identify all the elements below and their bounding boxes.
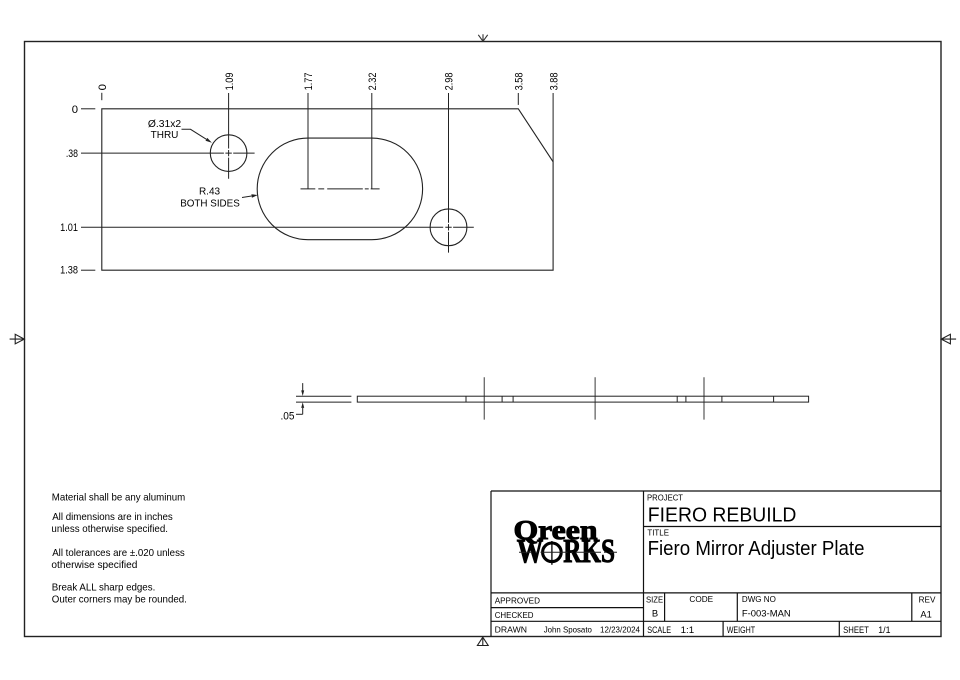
svg-text:TITLE: TITLE xyxy=(647,528,669,538)
svg-text:PROJECT: PROJECT xyxy=(647,492,683,502)
svg-text:John Sposato: John Sposato xyxy=(544,625,592,635)
svg-text:Break ALL sharp edges.: Break ALL sharp edges. xyxy=(52,583,156,594)
svg-text:2.98: 2.98 xyxy=(444,73,456,91)
svg-text:R.43: R.43 xyxy=(199,186,221,197)
svg-text:1.01: 1.01 xyxy=(60,222,78,234)
svg-text:DRAWN: DRAWN xyxy=(495,625,527,635)
svg-text:DWG NO: DWG NO xyxy=(742,594,776,604)
svg-text:B: B xyxy=(652,607,658,618)
svg-text:F-003-MAN: F-003-MAN xyxy=(742,607,791,618)
svg-text:APPROVED: APPROVED xyxy=(495,595,540,605)
svg-text:Fiero Mirror Adjuster Plate: Fiero Mirror Adjuster Plate xyxy=(648,538,865,560)
svg-text:12/23/2024: 12/23/2024 xyxy=(600,625,640,635)
svg-text:CODE: CODE xyxy=(689,594,713,604)
svg-text:1.09: 1.09 xyxy=(224,73,236,91)
svg-text:REV: REV xyxy=(919,595,936,605)
svg-text:1:1: 1:1 xyxy=(681,625,695,635)
svg-text:0: 0 xyxy=(72,104,78,116)
svg-text:W: W xyxy=(517,533,544,570)
svg-text:WEIGHT: WEIGHT xyxy=(727,625,756,635)
svg-text:1/1: 1/1 xyxy=(878,625,890,635)
svg-text:1.38: 1.38 xyxy=(60,265,78,277)
svg-text:FIERO REBUILD: FIERO REBUILD xyxy=(648,505,797,527)
svg-text:BOTH SIDES: BOTH SIDES xyxy=(180,199,240,210)
svg-text:Ø.31x2: Ø.31x2 xyxy=(148,119,182,130)
svg-text:THRU: THRU xyxy=(151,130,179,141)
svg-text:.38: .38 xyxy=(66,148,78,160)
svg-text:SHEET: SHEET xyxy=(843,625,869,635)
svg-text:All tolerances are ±.020 unles: All tolerances are ±.020 unless xyxy=(52,548,185,559)
svg-text:3.88: 3.88 xyxy=(548,73,560,91)
svg-text:Material shall be any aluminum: Material shall be any aluminum xyxy=(52,493,185,504)
svg-text:RKS: RKS xyxy=(563,533,615,570)
svg-text:otherwise specified: otherwise specified xyxy=(51,560,137,571)
svg-text:SCALE: SCALE xyxy=(647,625,671,635)
svg-text:All dimensions are in inches: All dimensions are in inches xyxy=(52,512,173,523)
svg-text:0: 0 xyxy=(97,84,109,90)
svg-text:SIZE: SIZE xyxy=(646,594,663,604)
svg-text:2.32: 2.32 xyxy=(367,73,379,91)
svg-text:.05: .05 xyxy=(281,411,295,423)
svg-text:unless otherwise specified.: unless otherwise specified. xyxy=(51,524,168,535)
svg-text:3.58: 3.58 xyxy=(514,73,526,91)
svg-text:CHECKED: CHECKED xyxy=(495,610,534,620)
svg-text:1.77: 1.77 xyxy=(303,73,315,91)
svg-text:A1: A1 xyxy=(920,609,931,620)
svg-text:Outer corners may be rounded.: Outer corners may be rounded. xyxy=(52,595,187,606)
